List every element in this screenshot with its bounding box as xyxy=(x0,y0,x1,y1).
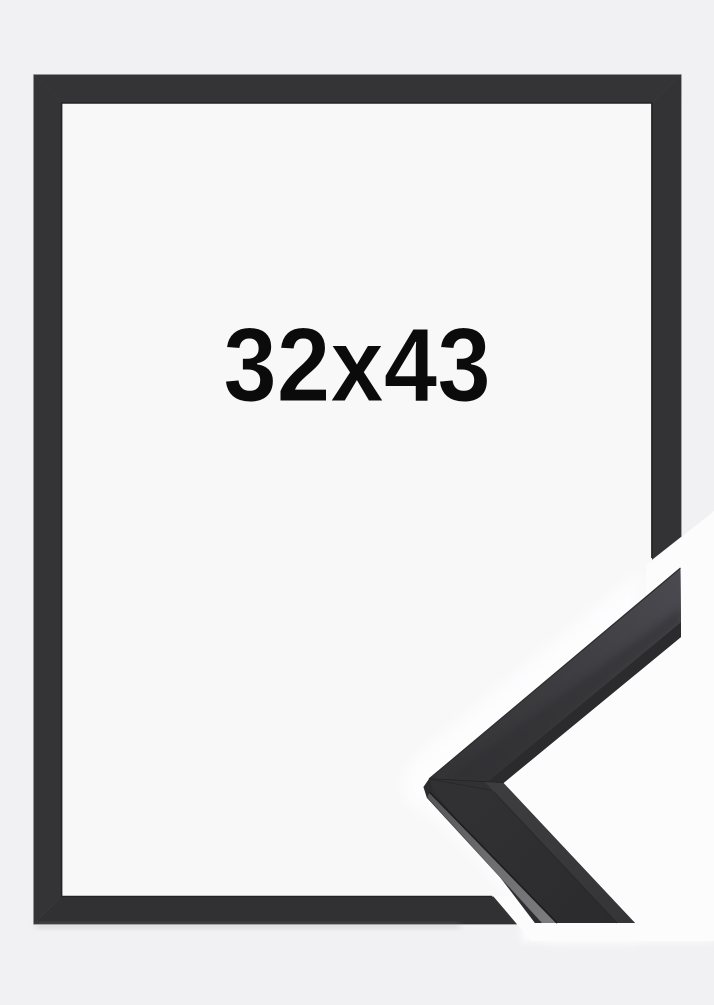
svg-text:32x43: 32x43 xyxy=(223,307,491,424)
